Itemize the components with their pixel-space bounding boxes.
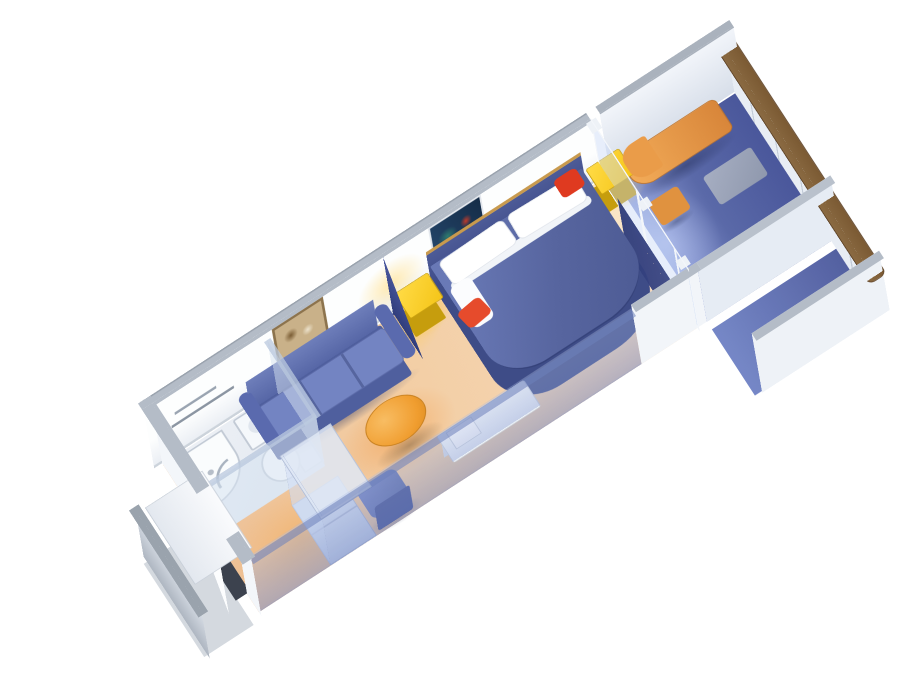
shower-drain <box>207 468 215 476</box>
stateroom-floorplan-scene <box>0 0 900 700</box>
